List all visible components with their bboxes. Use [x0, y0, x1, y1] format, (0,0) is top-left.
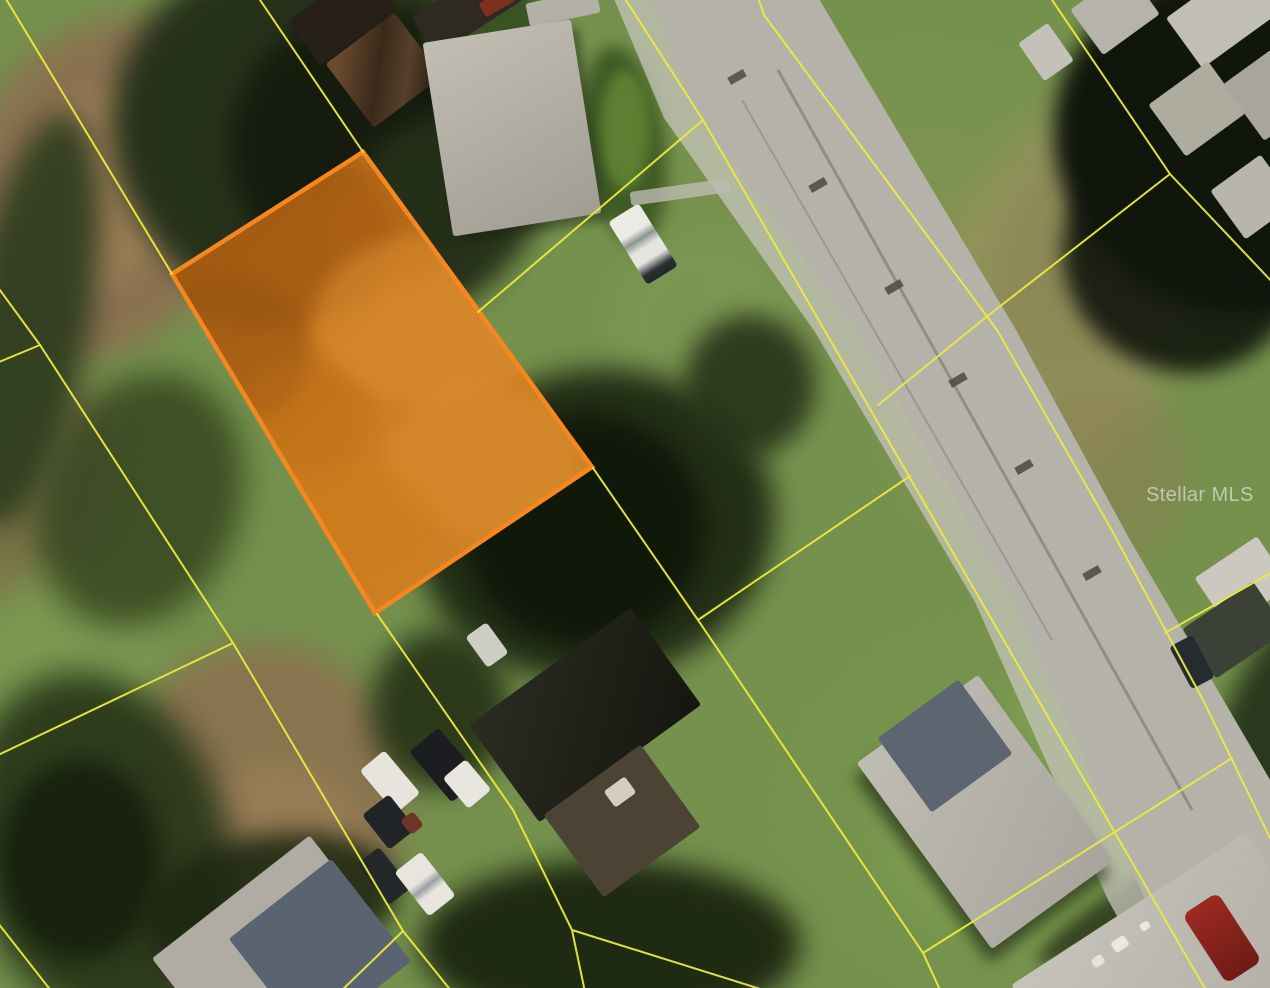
- parcel-boundary-line: [0, 918, 52, 988]
- parcel-overlay-layer: [0, 0, 1270, 988]
- parcel-boundary-line: [0, 345, 40, 364]
- parcel-boundary-line: [340, 931, 403, 988]
- parcel-boundary-line: [377, 614, 585, 988]
- parcel-boundary-line: [757, 0, 1270, 838]
- parcel-boundary-line: [3, 0, 172, 274]
- parcel-boundary-line: [593, 468, 941, 988]
- parcel-boundary-line: [923, 758, 1232, 953]
- parcel-boundary-line: [478, 120, 703, 312]
- parcel-boundary-line: [256, 0, 363, 152]
- parcel-boundary-line: [878, 174, 1170, 405]
- parcel-boundary-line: [1165, 570, 1270, 633]
- parcel-boundary-line: [698, 476, 910, 620]
- mls-watermark: Stellar MLS: [1146, 484, 1270, 507]
- parcel-boundary-line: [0, 643, 233, 757]
- parcel-boundary-line: [572, 930, 770, 988]
- parcel-boundary-lines: [0, 0, 1270, 988]
- aerial-map-canvas[interactable]: Stellar MLS: [0, 0, 1270, 988]
- parcel-boundary-line: [622, 0, 1207, 988]
